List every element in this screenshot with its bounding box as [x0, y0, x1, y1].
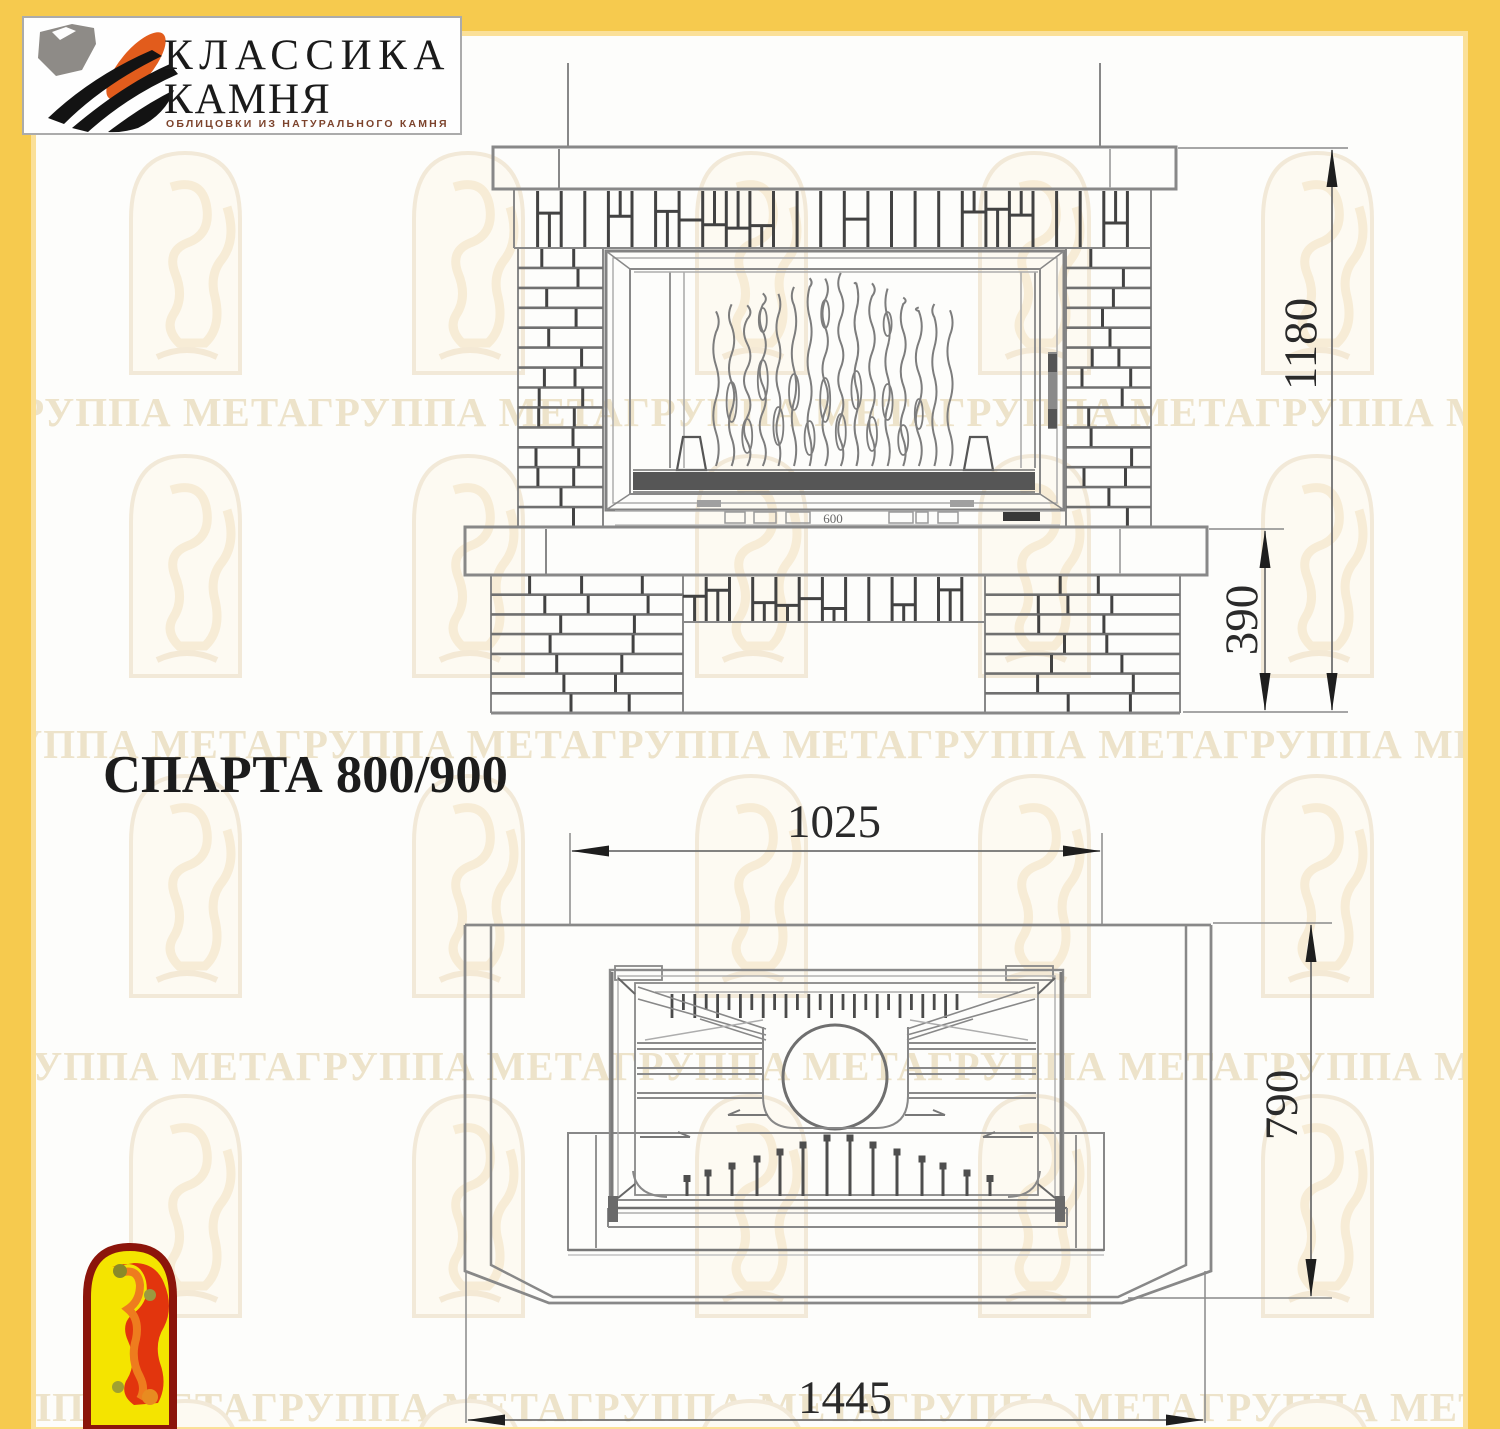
svg-text:1180: 1180	[1275, 298, 1327, 390]
svg-text:790: 790	[1256, 1070, 1308, 1141]
svg-text:390: 390	[1216, 585, 1268, 656]
svg-text:КАМНЯ: КАМНЯ	[164, 76, 332, 123]
svg-text:ОБЛИЦОВКИ ИЗ НАТУРАЛЬНОГО КАМН: ОБЛИЦОВКИ ИЗ НАТУРАЛЬНОГО КАМНЯ	[166, 118, 449, 130]
svg-text:600: 600	[823, 511, 843, 526]
svg-text:1445: 1445	[798, 1372, 892, 1424]
svg-text:1025: 1025	[787, 796, 881, 848]
svg-text:КЛАССИКА: КЛАССИКА	[164, 32, 451, 79]
